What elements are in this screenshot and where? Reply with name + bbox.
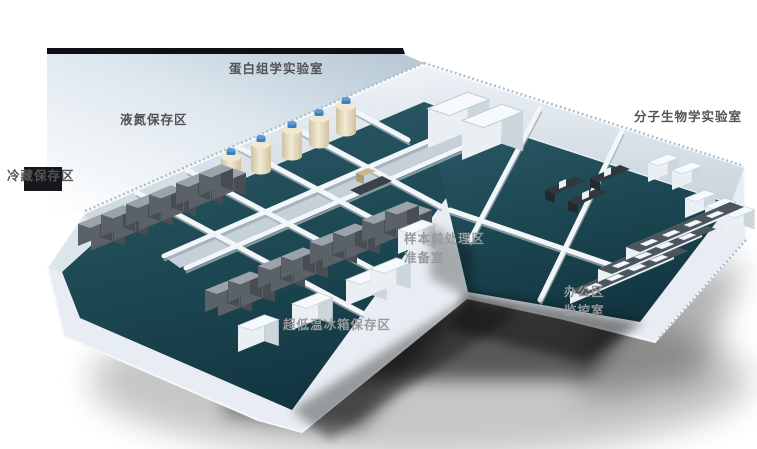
floorplan-stage: 蛋白组学实验室 液氮保存区 冷藏保存区 分子生物学实验室 样本前处理区 准备室 … [0, 0, 757, 449]
label-proteomics-lab: 蛋白组学实验室 [229, 63, 324, 76]
ln2-tank [282, 121, 302, 161]
label-cold-storage-area: 冷藏保存区 [7, 170, 75, 183]
ln2-tank [336, 97, 356, 137]
ln2-tank [251, 135, 271, 175]
label-liquid-nitrogen-area: 液氮保存区 [120, 114, 188, 127]
label-molecular-biology-lab: 分子生物学实验室 [634, 111, 742, 124]
backdrop-top-strip [47, 48, 405, 54]
floorplan-rendering [0, 0, 757, 449]
label-preparation-room: 准备室 [404, 252, 445, 265]
ln2-tank [309, 109, 329, 149]
label-monitoring-room: 监控室 [564, 305, 605, 318]
label-sample-pretreatment-area: 样本前处理区 [404, 233, 485, 246]
label-office-area: 办公区 [564, 286, 605, 299]
label-ult-freezer-area: 超低温冰箱保存区 [283, 319, 391, 332]
